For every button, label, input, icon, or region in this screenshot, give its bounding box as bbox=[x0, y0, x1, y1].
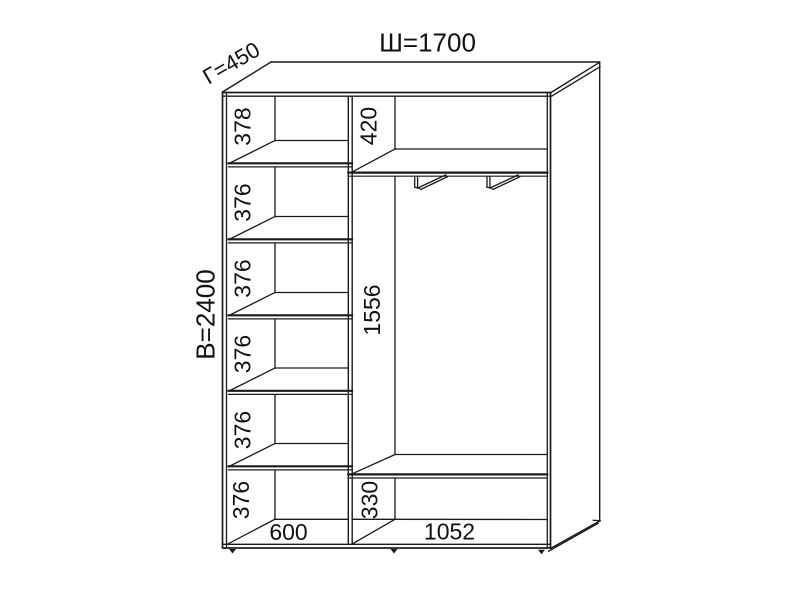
svg-text:600: 600 bbox=[269, 519, 307, 545]
svg-text:420: 420 bbox=[356, 107, 382, 145]
svg-text:Ш=1700: Ш=1700 bbox=[379, 28, 476, 58]
svg-text:1052: 1052 bbox=[424, 519, 475, 545]
svg-text:376: 376 bbox=[230, 335, 256, 373]
svg-text:376: 376 bbox=[230, 183, 256, 221]
svg-text:В=2400: В=2400 bbox=[191, 269, 221, 359]
svg-text:1556: 1556 bbox=[359, 284, 385, 335]
svg-text:378: 378 bbox=[230, 107, 256, 145]
svg-text:376: 376 bbox=[228, 481, 254, 519]
svg-text:330: 330 bbox=[357, 481, 383, 519]
svg-text:Г=450: Г=450 bbox=[198, 37, 264, 89]
svg-text:376: 376 bbox=[230, 411, 256, 449]
svg-text:376: 376 bbox=[230, 259, 256, 297]
